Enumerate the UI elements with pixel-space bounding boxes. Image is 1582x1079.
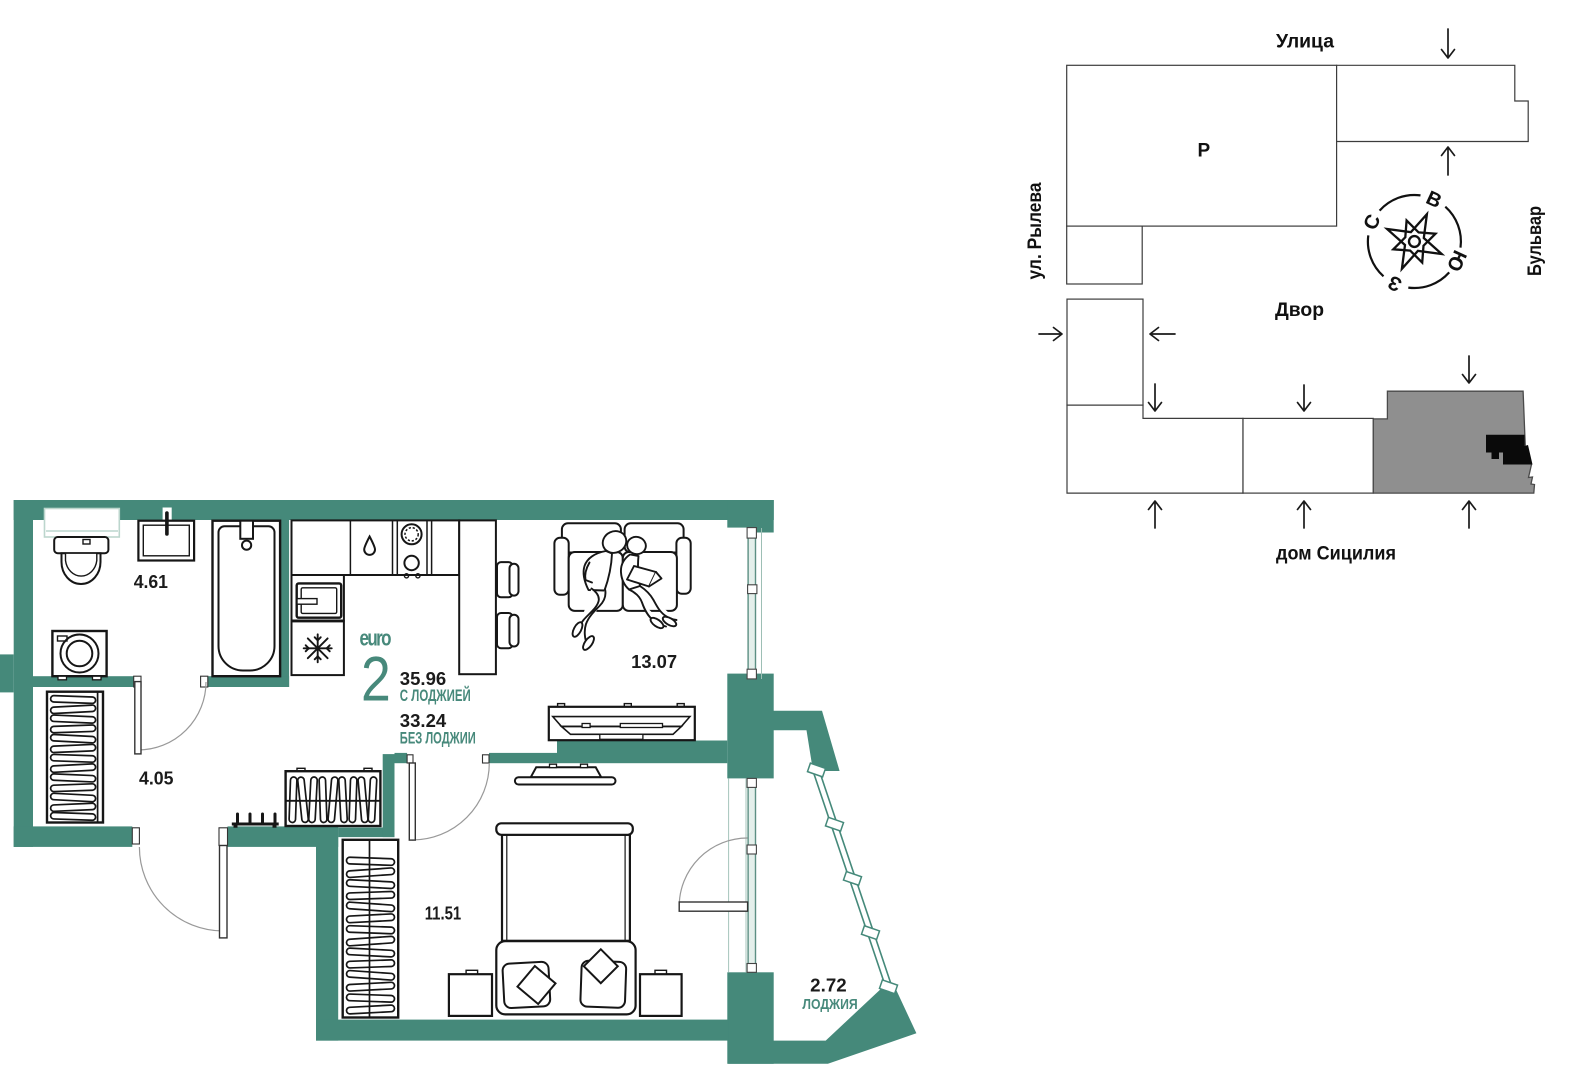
svg-text:Улица: Улица	[1276, 32, 1334, 53]
svg-text:дом Сицилия: дом Сицилия	[1276, 544, 1396, 565]
svg-text:Двор: Двор	[1275, 300, 1324, 321]
svg-text:4.05: 4.05	[139, 769, 174, 789]
svg-text:ул. Рылева: ул. Рылева	[1025, 182, 1046, 279]
svg-text:4.61: 4.61	[134, 572, 168, 592]
svg-text:ЛОДЖИЯ: ЛОДЖИЯ	[802, 996, 857, 1013]
svg-text:Бульвар: Бульвар	[1525, 206, 1546, 276]
svg-text:З: З	[1385, 270, 1406, 295]
svg-text:Р: Р	[1198, 141, 1211, 162]
svg-text:В: В	[1423, 187, 1445, 213]
svg-text:С: С	[1360, 211, 1386, 233]
svg-text:БЕЗ ЛОДЖИИ: БЕЗ ЛОДЖИИ	[400, 728, 476, 747]
svg-text:С ЛОДЖИЕЙ: С ЛОДЖИЕЙ	[400, 686, 471, 705]
svg-text:13.07: 13.07	[631, 652, 677, 672]
svg-text:Ю: Ю	[1442, 247, 1471, 275]
svg-text:11.51: 11.51	[425, 903, 462, 923]
svg-text:2.72: 2.72	[810, 976, 847, 996]
svg-text:2: 2	[361, 644, 391, 714]
